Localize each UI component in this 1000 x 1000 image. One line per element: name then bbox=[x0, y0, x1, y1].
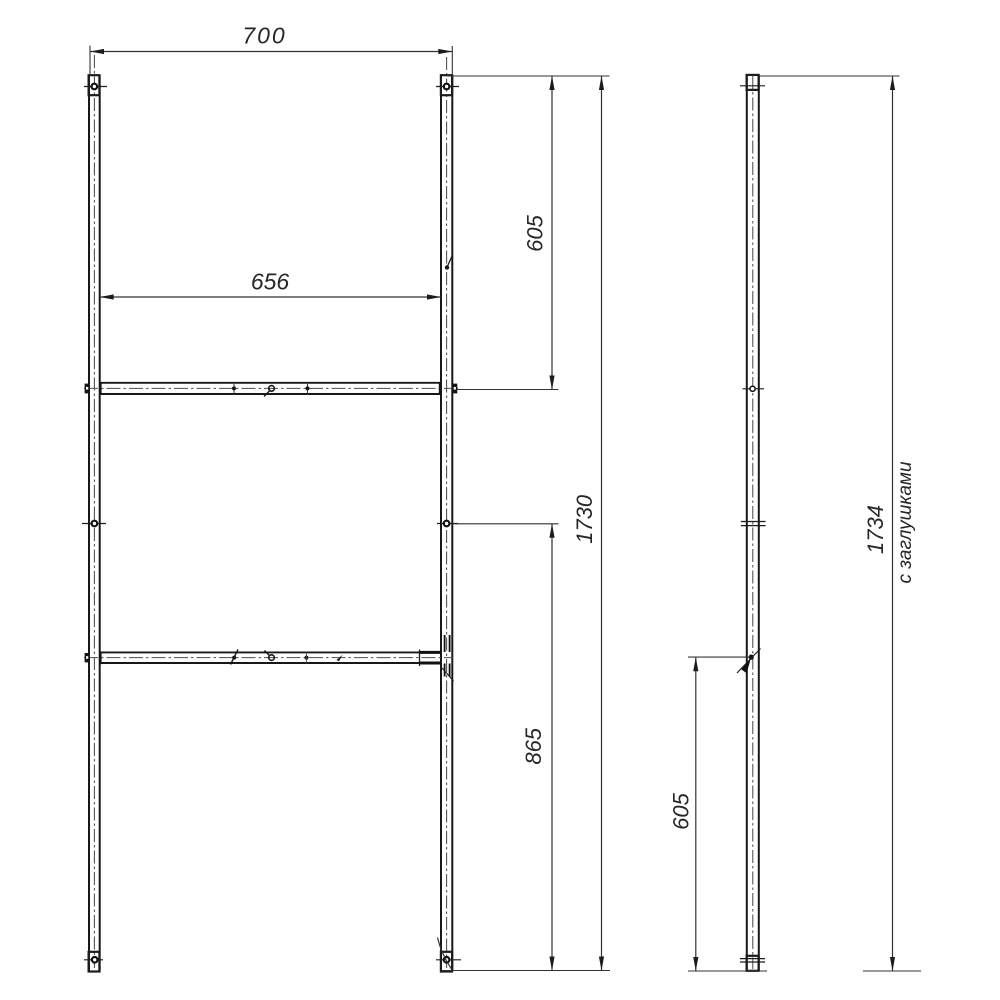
svg-text:700: 700 bbox=[242, 23, 286, 49]
svg-text:1730: 1730 bbox=[572, 494, 597, 544]
svg-text:1734: 1734 bbox=[863, 505, 888, 554]
svg-text:605: 605 bbox=[668, 792, 693, 829]
svg-text:с заглушками: с заглушками bbox=[895, 461, 916, 583]
svg-text:605: 605 bbox=[523, 214, 548, 251]
svg-text:865: 865 bbox=[521, 727, 546, 764]
svg-text:656: 656 bbox=[251, 269, 290, 295]
